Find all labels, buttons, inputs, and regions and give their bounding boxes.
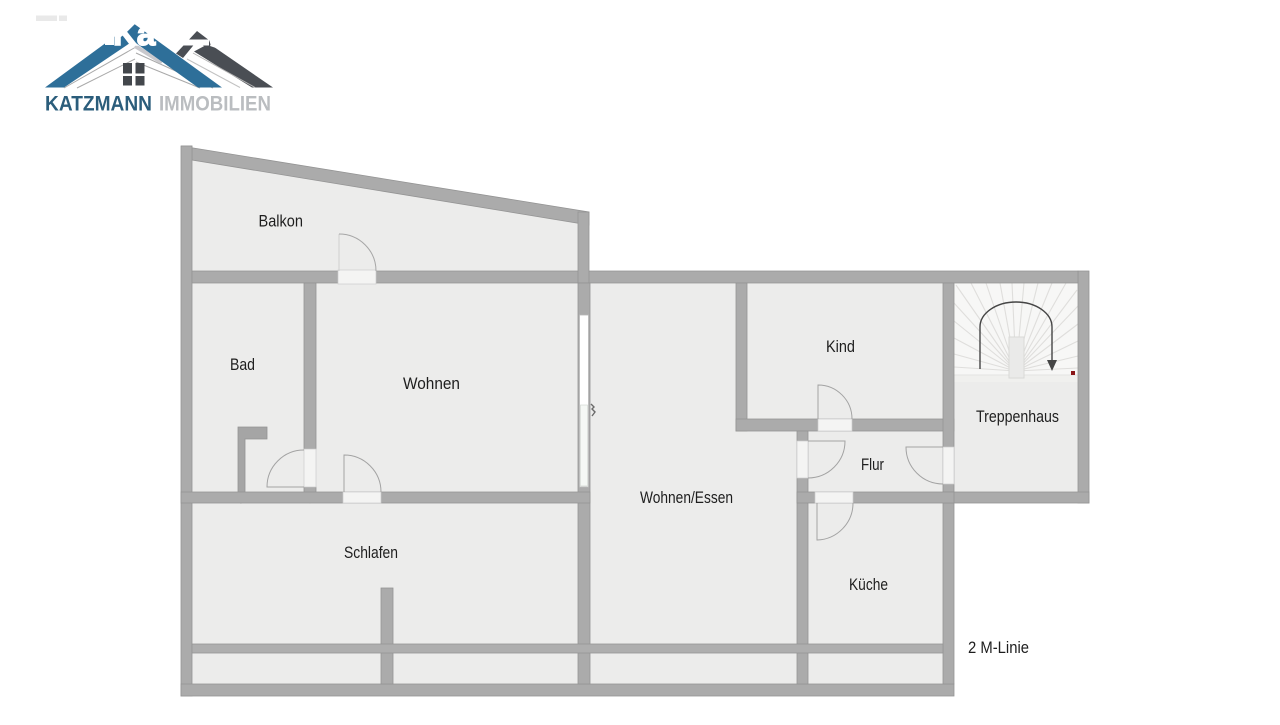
svg-text:KATZMANN: KATZMANN: [45, 93, 152, 116]
svg-text:Bad: Bad: [230, 356, 255, 374]
svg-text:Treppenhaus: Treppenhaus: [976, 408, 1059, 426]
svg-text:2 M-Linie: 2 M-Linie: [968, 639, 1029, 657]
svg-text:Kind: Kind: [826, 338, 855, 356]
svg-text:Wohnen/Essen: Wohnen/Essen: [640, 489, 733, 507]
svg-text:Balkon: Balkon: [259, 213, 304, 231]
svg-text:IMMOBILIEN: IMMOBILIEN: [159, 93, 271, 116]
svg-text:Flur: Flur: [861, 456, 884, 474]
svg-text:Ka: Ka: [113, 15, 156, 52]
svg-text:Küche: Küche: [849, 576, 888, 594]
svg-text:Schlafen: Schlafen: [344, 544, 398, 562]
svg-text:Wohnen: Wohnen: [403, 375, 460, 393]
